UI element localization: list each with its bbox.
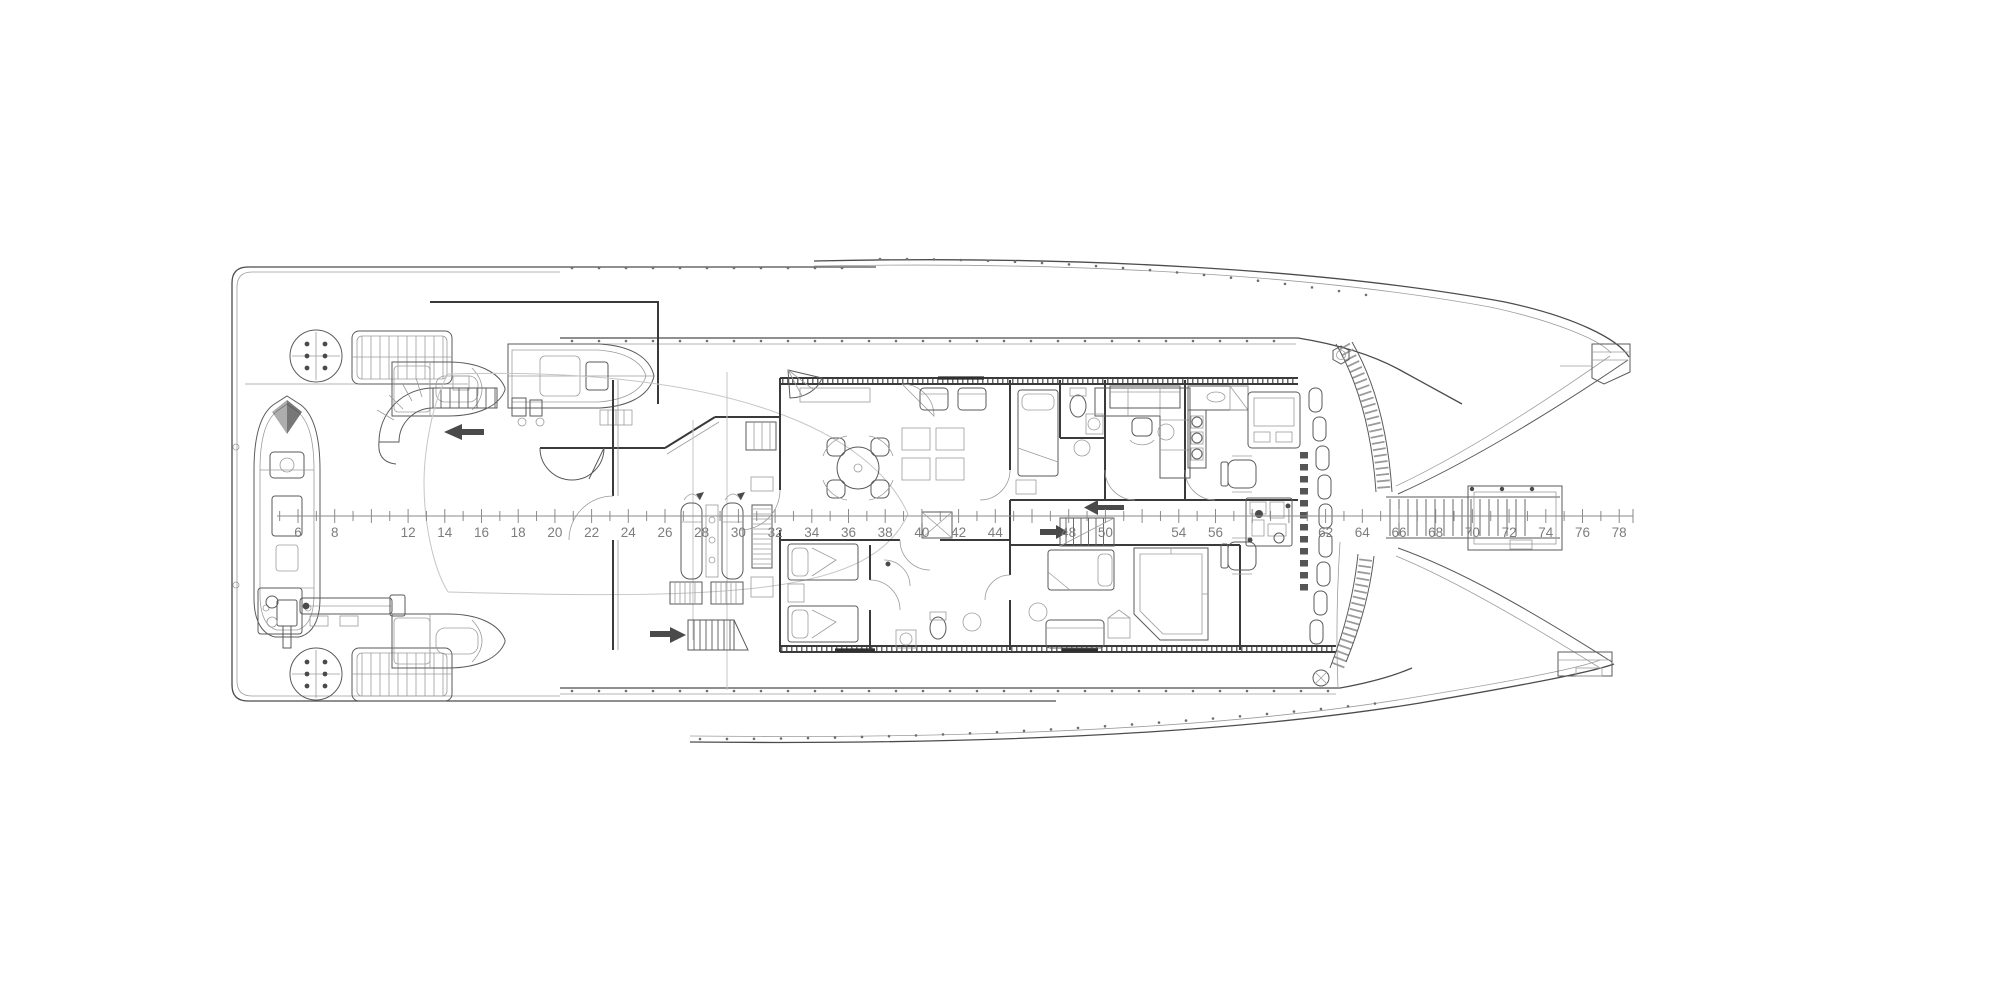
svg-text:62: 62 — [1318, 525, 1333, 540]
svg-text:72: 72 — [1502, 525, 1517, 540]
spiral-staircase — [377, 378, 497, 464]
guest-cabin-bed — [1016, 390, 1058, 494]
svg-text:18: 18 — [511, 525, 526, 540]
svg-text:14: 14 — [437, 525, 453, 540]
vip-cabin — [1029, 548, 1208, 648]
stair-direction-arrow — [444, 424, 484, 440]
deck-grating-port — [352, 331, 452, 384]
deckhouse — [569, 370, 1336, 652]
svg-text:30: 30 — [731, 525, 746, 540]
port-hull-bow — [1560, 344, 1630, 384]
svg-text:54: 54 — [1171, 525, 1187, 540]
svg-text:24: 24 — [621, 525, 637, 540]
deck-grating-starboard — [352, 648, 452, 701]
svg-text:70: 70 — [1465, 525, 1480, 540]
svg-text:64: 64 — [1355, 525, 1371, 540]
helm-chairs — [1221, 456, 1256, 574]
svg-text:28: 28 — [694, 525, 709, 540]
aft-entry-staircase — [650, 620, 748, 650]
svg-text:22: 22 — [584, 525, 599, 540]
svg-text:38: 38 — [878, 525, 893, 540]
svg-text:44: 44 — [988, 525, 1004, 540]
deck-plan-drawing: catamaran-yacht-deck-general-arrangement… — [0, 0, 2000, 1000]
svg-text:20: 20 — [547, 525, 562, 540]
svg-text:66: 66 — [1391, 525, 1406, 540]
tender-rib-boat — [254, 396, 320, 648]
svg-text:56: 56 — [1208, 525, 1223, 540]
svg-text:42: 42 — [951, 525, 966, 540]
aft-deck — [254, 302, 908, 701]
svg-text:6: 6 — [294, 525, 302, 540]
svg-text:34: 34 — [804, 525, 820, 540]
svg-text:16: 16 — [474, 525, 489, 540]
svg-text:26: 26 — [657, 525, 672, 540]
svg-text:68: 68 — [1428, 525, 1443, 540]
helm-console — [1248, 392, 1300, 448]
deck-crane — [258, 588, 405, 634]
svg-text:50: 50 — [1098, 525, 1113, 540]
bathroom-lower — [884, 560, 981, 648]
bathroom-upper — [1060, 380, 1105, 438]
louver-cabinet — [746, 422, 776, 597]
watercraft-starboard — [392, 614, 505, 668]
office-desk — [1110, 386, 1180, 445]
svg-text:12: 12 — [401, 525, 416, 540]
frame-ruler: 6812141618202224262830323436384042444850… — [277, 509, 1633, 540]
svg-text:36: 36 — [841, 525, 856, 540]
capstan-hatch-aft-port — [290, 330, 342, 382]
mooring-fitting-starboard — [1313, 670, 1329, 686]
svg-text:74: 74 — [1538, 525, 1554, 540]
deck-plan-page: catamaran-yacht-deck-general-arrangement… — [0, 0, 2000, 1000]
windlass-machinery — [1246, 498, 1292, 546]
saloon-dining-table — [823, 436, 893, 500]
svg-text:48: 48 — [1061, 525, 1076, 540]
saloon-lounge — [800, 388, 1190, 480]
svg-text:78: 78 — [1612, 525, 1627, 540]
svg-text:32: 32 — [768, 525, 783, 540]
bow-gangway-ladder — [1386, 486, 1562, 550]
hull-outline — [232, 260, 1629, 743]
windshield-mullion-strip — [1300, 452, 1308, 591]
svg-text:40: 40 — [914, 525, 929, 540]
svg-text:76: 76 — [1575, 525, 1590, 540]
capstan-hatch-aft-starboard — [290, 648, 342, 700]
svg-text:8: 8 — [331, 525, 339, 540]
